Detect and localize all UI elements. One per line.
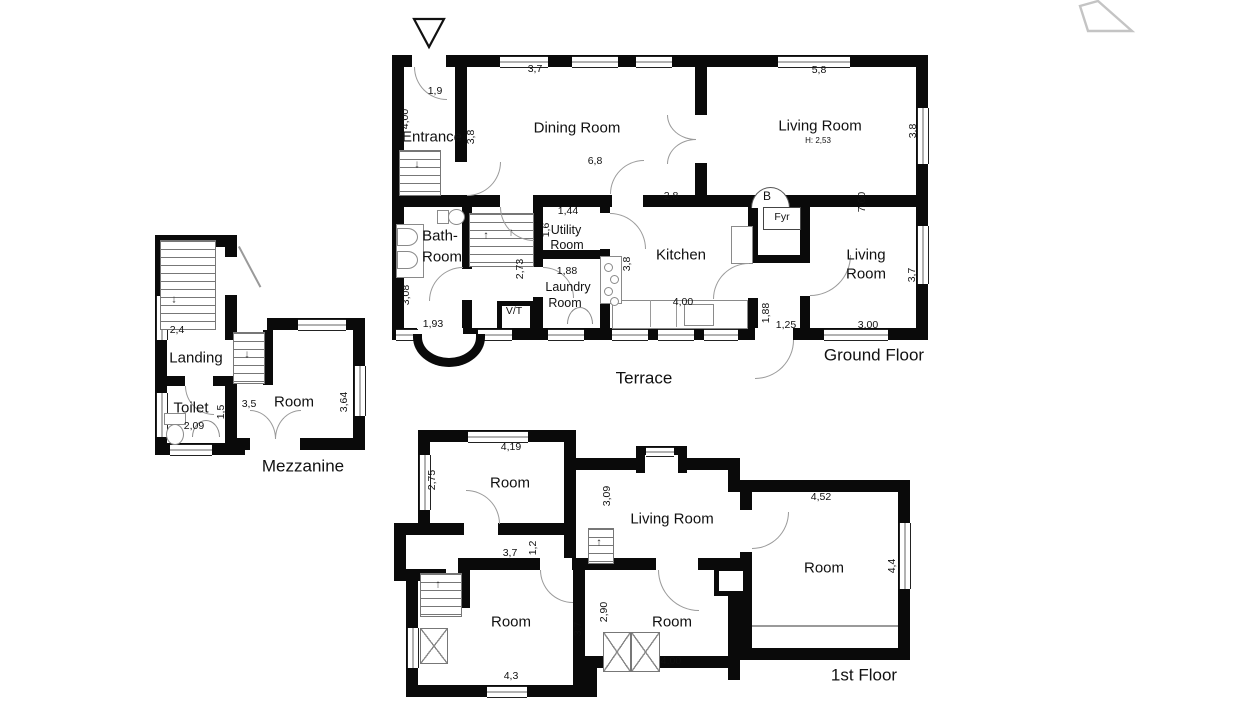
dimension-label: 1,44 bbox=[558, 206, 578, 217]
room-label: Room bbox=[846, 267, 886, 282]
north-arrow-icon bbox=[410, 16, 448, 52]
stair-direction-arrow: ↑ bbox=[483, 231, 489, 242]
wall bbox=[695, 163, 707, 207]
floor-title: Ground Floor bbox=[824, 347, 924, 364]
window bbox=[354, 366, 366, 416]
stair-direction-arrow: ↑ bbox=[435, 580, 441, 591]
wall bbox=[748, 298, 758, 328]
dimension-label: 1,25 bbox=[776, 320, 796, 331]
dimension-label: 4,4 bbox=[887, 559, 898, 574]
window bbox=[917, 108, 929, 164]
dimension-label: Fyr bbox=[774, 212, 789, 223]
room-label: Laundry bbox=[545, 281, 590, 294]
window bbox=[658, 329, 694, 341]
sink bbox=[397, 251, 418, 269]
room-label: Room bbox=[804, 561, 844, 576]
dimension-label: 1,2 bbox=[528, 541, 539, 556]
stair-direction-arrow: ↓ bbox=[414, 160, 420, 171]
room-label: Room bbox=[550, 239, 583, 252]
roof-window bbox=[420, 628, 448, 664]
dimension-label: 3,08 bbox=[401, 285, 412, 305]
staircase bbox=[420, 573, 462, 617]
wall bbox=[728, 458, 740, 492]
window bbox=[824, 329, 888, 341]
dimension-label: 1,9 bbox=[428, 86, 443, 97]
door-opening bbox=[412, 55, 446, 67]
dimension-label: 2,4 bbox=[170, 325, 185, 336]
dimension-label: 1,93 bbox=[423, 319, 443, 330]
door-opening bbox=[656, 558, 698, 570]
dimension-label: 1,88 bbox=[761, 303, 772, 323]
door-opening bbox=[600, 213, 610, 249]
stove-burner bbox=[610, 297, 619, 306]
floor-title: Mezzanine bbox=[262, 458, 344, 475]
dimension-label: 3,00 bbox=[858, 320, 878, 331]
dimension-label: 4.00 bbox=[661, 656, 681, 667]
door-arc bbox=[429, 267, 463, 301]
door-opening bbox=[250, 438, 300, 450]
dimension-label: 3,7 bbox=[528, 64, 543, 75]
room-label: Kitchen bbox=[656, 248, 706, 263]
room-label: Landing bbox=[169, 351, 222, 366]
dimension-label: 4,00 bbox=[400, 109, 411, 129]
wall bbox=[564, 458, 641, 470]
room-label: Room bbox=[490, 476, 530, 491]
dimension-label: 6,8 bbox=[588, 156, 603, 167]
room-label: Living Room bbox=[630, 512, 713, 527]
door-arc bbox=[667, 139, 696, 164]
wall bbox=[497, 301, 502, 328]
wall bbox=[530, 301, 535, 328]
dimension-label: 7,60 bbox=[857, 192, 868, 212]
staircase bbox=[399, 150, 441, 196]
thin-line bbox=[752, 625, 898, 627]
door-arc bbox=[466, 490, 500, 524]
door-arc bbox=[810, 255, 851, 296]
window bbox=[572, 56, 618, 68]
door-arc bbox=[610, 213, 646, 249]
dimension-label: 3,64 bbox=[339, 392, 350, 412]
floor-title: Terrace bbox=[616, 370, 673, 387]
door-arc bbox=[658, 570, 699, 611]
window bbox=[917, 226, 929, 284]
room-label: Living Room bbox=[778, 119, 861, 134]
wall bbox=[800, 296, 810, 328]
dimension-label: 2,90 bbox=[599, 602, 610, 622]
window bbox=[704, 329, 738, 341]
wall bbox=[695, 67, 707, 115]
wall bbox=[455, 67, 467, 162]
wall bbox=[225, 385, 237, 443]
door-opening bbox=[464, 523, 498, 535]
door-opening bbox=[740, 510, 752, 552]
window bbox=[548, 329, 584, 341]
dimension-label: 3,8 bbox=[908, 124, 919, 139]
dimension-label: 1,88 bbox=[557, 266, 577, 277]
door-arc bbox=[467, 162, 501, 196]
window bbox=[646, 447, 674, 457]
window bbox=[899, 523, 911, 589]
dimension-label: 3,7 bbox=[573, 622, 584, 637]
door-opening bbox=[540, 558, 572, 570]
dimension-label: 2,75 bbox=[427, 470, 438, 490]
room-label: Utility bbox=[551, 224, 582, 237]
door-opening bbox=[185, 376, 213, 386]
door-leaf bbox=[238, 246, 261, 288]
dimension-label: 3,8 bbox=[622, 257, 633, 272]
room-label: B bbox=[763, 190, 771, 202]
window bbox=[298, 319, 346, 331]
door-arc bbox=[540, 570, 573, 603]
toilet bbox=[166, 424, 184, 445]
dimension-label: 4,19 bbox=[501, 442, 521, 453]
room-label: Living bbox=[846, 248, 885, 263]
stove-burner bbox=[604, 263, 613, 272]
dimension-label: 3,09 bbox=[602, 486, 613, 506]
door-arc bbox=[713, 263, 749, 299]
room-label: Room bbox=[422, 250, 462, 265]
wall bbox=[800, 207, 810, 257]
dimension-label: 2,73 bbox=[515, 259, 526, 279]
window bbox=[170, 444, 212, 456]
window bbox=[612, 329, 648, 341]
dimension-label: 1,5 bbox=[216, 405, 227, 420]
wall bbox=[392, 195, 928, 207]
dimension-label: V/T bbox=[506, 306, 522, 317]
room-label: Toilet bbox=[173, 401, 208, 416]
door-arc bbox=[610, 160, 644, 194]
room-label: Room bbox=[548, 297, 581, 310]
bay-window bbox=[413, 334, 485, 367]
window bbox=[487, 686, 527, 698]
dimension-label: 5,8 bbox=[812, 65, 827, 76]
roof-window bbox=[631, 632, 660, 672]
door-arc bbox=[275, 410, 301, 439]
toilet bbox=[448, 209, 465, 225]
floor-title: 1st Floor bbox=[831, 667, 897, 684]
thin-line bbox=[650, 300, 651, 327]
door-arc bbox=[752, 512, 789, 549]
roof-window bbox=[603, 632, 631, 672]
wall bbox=[462, 300, 472, 328]
stair-direction-arrow: ↑ bbox=[596, 538, 602, 549]
freezer-cabinet bbox=[731, 226, 753, 264]
dimension-label: 3,7 bbox=[907, 268, 918, 283]
door-arc bbox=[250, 410, 276, 439]
dimension-label: 4,00 bbox=[673, 297, 693, 308]
floor-plan-canvas: ↓↑↑↓↓↑↑❄1,94,00Entrance3,83,7Dining Room… bbox=[0, 0, 1240, 720]
door-opening bbox=[612, 195, 643, 207]
dimension-label: H: 2,53 bbox=[805, 137, 831, 145]
dimension-label: 3,5 bbox=[242, 399, 257, 410]
dimension-label: 3,7 bbox=[503, 548, 518, 559]
door-arc bbox=[755, 340, 794, 379]
stair-direction-arrow: ↓ bbox=[244, 350, 250, 361]
sink bbox=[397, 228, 418, 246]
room-label: Room bbox=[652, 615, 692, 630]
chimney bbox=[714, 566, 748, 596]
dimension-label: 2,09 bbox=[184, 421, 204, 432]
room-label: Room bbox=[274, 395, 314, 410]
dimension-label: 4,52 bbox=[811, 492, 831, 503]
door-opening bbox=[500, 195, 533, 207]
wall bbox=[225, 235, 237, 257]
wall bbox=[740, 648, 910, 660]
room-label: Bath- bbox=[422, 229, 458, 244]
stove-burner bbox=[610, 275, 619, 284]
wall bbox=[564, 430, 576, 558]
room-label: Dining Room bbox=[534, 121, 621, 136]
window bbox=[407, 628, 419, 668]
wall bbox=[585, 656, 597, 697]
door-arc bbox=[667, 115, 696, 140]
room-label: Entrance bbox=[402, 130, 462, 145]
dimension-label: 4,3 bbox=[504, 671, 519, 682]
room-label: Room bbox=[491, 615, 531, 630]
window bbox=[636, 56, 672, 68]
dimension-label: 3,8 bbox=[466, 130, 477, 145]
site-outline-icon bbox=[1068, 0, 1148, 42]
stove-burner bbox=[604, 287, 613, 296]
dimension-label: 1,6 bbox=[541, 223, 552, 238]
wall bbox=[748, 255, 810, 263]
staircase bbox=[160, 240, 216, 330]
stair-direction-arrow: ↓ bbox=[171, 295, 177, 306]
dimension-label: 2,8 bbox=[664, 191, 679, 202]
